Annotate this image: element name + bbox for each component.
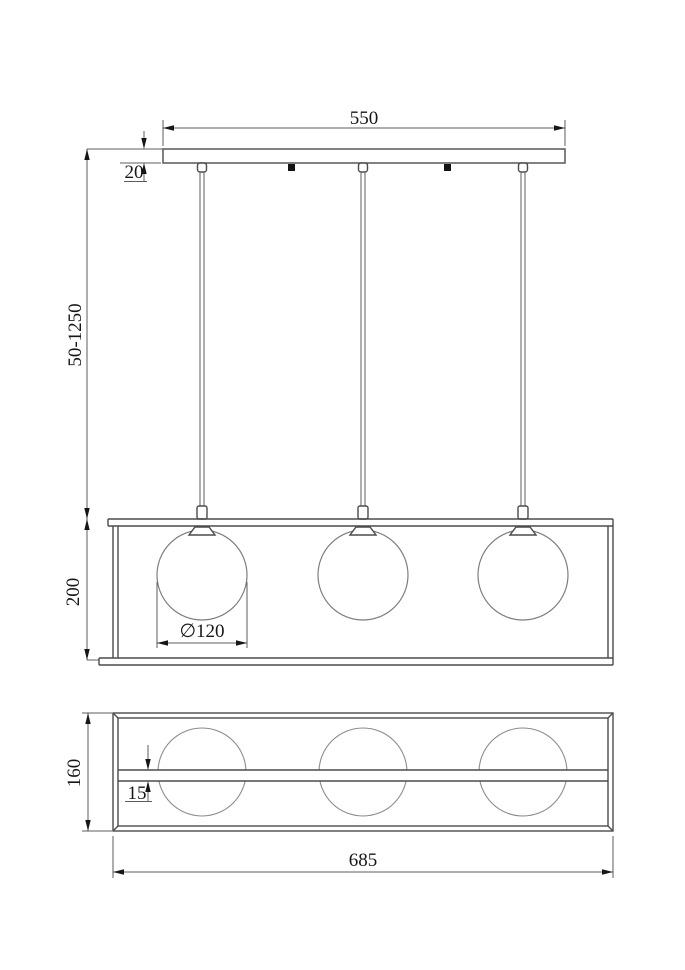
frame-plan-view: 15 160 685 — [64, 713, 613, 878]
frame-right-post — [608, 519, 613, 665]
arrowhead-right — [602, 869, 613, 874]
dim-frame-length: 685 — [113, 836, 613, 878]
arrowhead-up — [84, 519, 89, 530]
dim-frame-depth-label: 160 — [64, 759, 85, 788]
glass-globe — [478, 530, 568, 620]
glass-globe — [318, 530, 408, 620]
arrowhead-down — [145, 759, 150, 770]
dim-canopy-width: 550 — [163, 108, 565, 146]
arrowhead-down — [84, 649, 89, 660]
cord-connector — [197, 506, 207, 519]
dim-canopy-thickness-label: 20 — [125, 162, 144, 183]
arrowhead-down — [141, 138, 146, 149]
dim-frame-length-label: 685 — [349, 850, 378, 871]
arrowhead-down — [85, 820, 90, 831]
suspension-cords — [197, 172, 528, 519]
cord-right — [521, 172, 525, 506]
lamp-holder-cap — [510, 527, 536, 535]
dim-canopy-thickness: 20 — [87, 131, 163, 183]
frame-left-post — [113, 526, 118, 658]
cord-connector — [358, 506, 368, 519]
arrowhead-left — [163, 125, 174, 130]
dim-suspension-range-label: 50-1250 — [65, 303, 86, 366]
cord-connector — [518, 506, 528, 519]
cord-left — [200, 172, 204, 506]
canopy-plate — [163, 149, 565, 163]
lamp-holder-cap — [350, 527, 376, 535]
dim-frame-height: 200 — [63, 519, 99, 660]
drawing-svg: 550 20 50-1250 — [0, 0, 685, 970]
ceiling-plate-view: 550 20 50-1250 — [65, 108, 565, 519]
dim-globe-diameter-label: ∅120 — [179, 621, 224, 642]
dim-rail-width-label: 15 — [128, 783, 147, 804]
cord-gripper — [198, 163, 207, 172]
pendant-lamp-technical-drawing: 550 20 50-1250 — [0, 0, 685, 970]
lamp-holder-cap — [189, 527, 215, 535]
arrowhead-up — [84, 149, 89, 160]
dim-frame-depth: 160 — [64, 713, 112, 831]
dim-canopy-width-label: 550 — [350, 108, 379, 129]
mounting-screw — [444, 164, 451, 171]
mounting-screw — [288, 164, 295, 171]
arrowhead-right — [236, 640, 247, 645]
dim-frame-height-label: 200 — [63, 578, 84, 607]
arrowhead-left — [157, 640, 168, 645]
arrowhead-up — [85, 713, 90, 724]
cord-gripper — [359, 163, 368, 172]
center-rail-fill — [118, 770, 608, 781]
arrowhead-left — [113, 869, 124, 874]
dim-suspension-range: 50-1250 — [65, 149, 90, 519]
arrowhead-right — [554, 125, 565, 130]
glass-globe — [157, 530, 247, 620]
cord-center — [361, 172, 365, 506]
frame-bottom-rail — [99, 658, 613, 665]
arrowhead-down — [84, 508, 89, 519]
frame-top-rail — [108, 519, 613, 526]
frame-front-view: 200 ∅120 — [63, 519, 613, 665]
cord-gripper — [519, 163, 528, 172]
